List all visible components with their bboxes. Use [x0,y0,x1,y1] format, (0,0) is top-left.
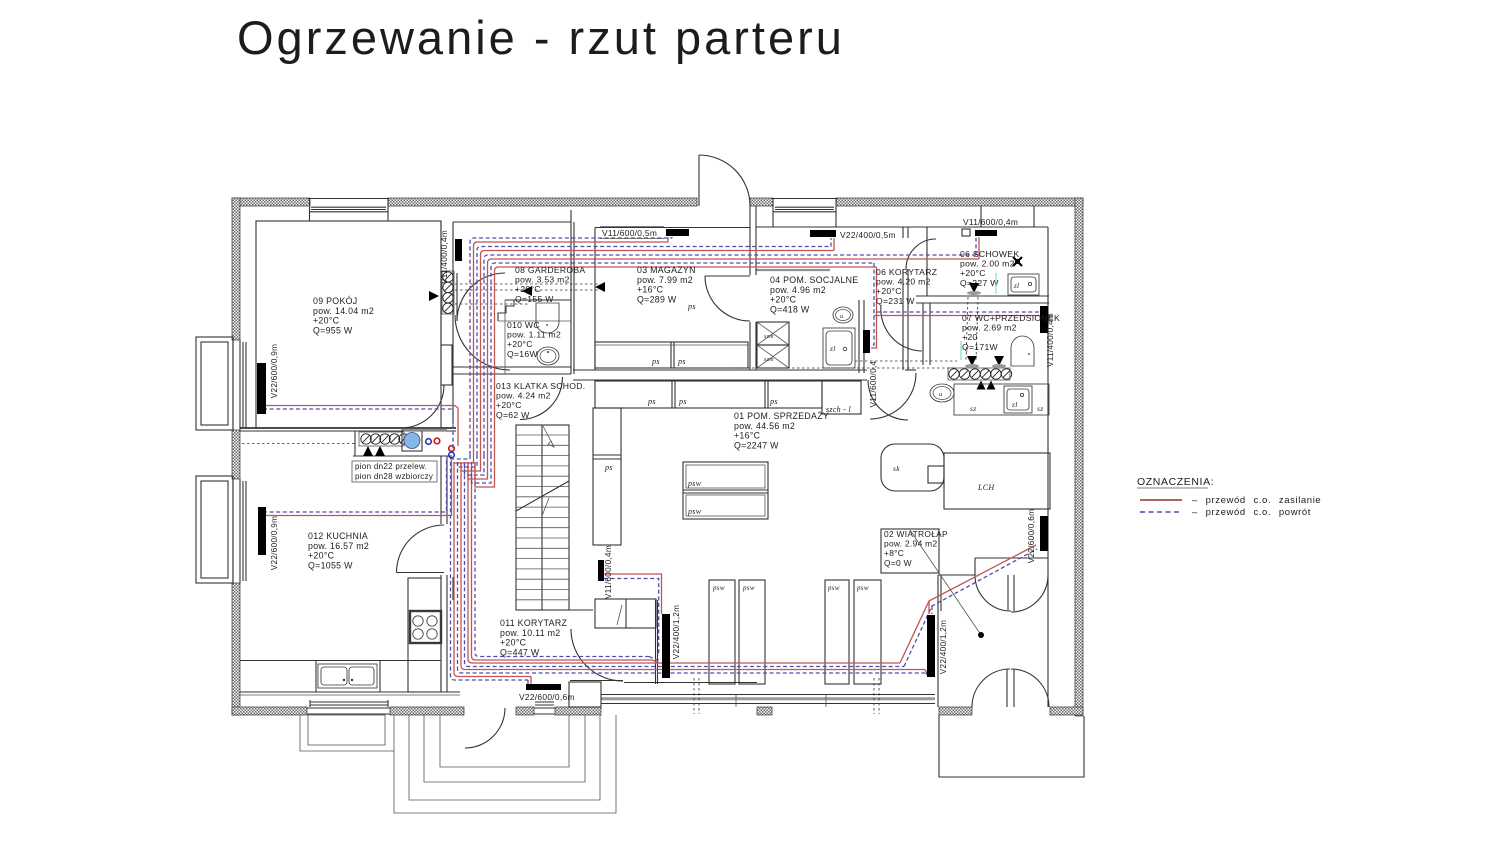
svg-text:03 MAGAZYN: 03 MAGAZYN [637,265,696,275]
svg-text:sz: sz [970,404,976,413]
svg-text:sk: sk [893,464,900,473]
svg-text:Q=418 W: Q=418 W [770,304,810,314]
svg-text:Q=1055 W: Q=1055 W [308,560,353,570]
svg-text:u: u [840,313,844,320]
svg-text:pow. 4.96 m2: pow. 4.96 m2 [770,285,826,295]
svg-text:– przewód c.o. zasilanie: – przewód c.o. zasilanie [1192,495,1321,506]
svg-text:+20°C: +20°C [876,286,902,296]
svg-text:Q=955 W: Q=955 W [313,325,353,335]
svg-text:V11/600/0,4: V11/600/0,4 [869,360,878,407]
svg-text:ps: ps [677,357,686,366]
svg-text:ps: ps [769,397,778,406]
svg-text:V22/600/0,9m: V22/600/0,9m [270,516,279,571]
svg-text:pow. 1.11 m2: pow. 1.11 m2 [507,330,561,340]
svg-text:02 WIATROŁAP: 02 WIATROŁAP [884,529,948,539]
svg-text:011 KORYTARZ: 011 KORYTARZ [500,618,567,628]
svg-text:+16°C: +16°C [637,285,664,295]
svg-text:Q=171W: Q=171W [962,342,999,352]
svg-text:V22/600/0,9m: V22/600/0,9m [270,344,279,399]
svg-text:pow. 44.56 m2: pow. 44.56 m2 [734,421,795,431]
svg-text:012 KUCHNIA: 012 KUCHNIA [308,531,368,541]
svg-text:08 GARDEROBA: 08 GARDEROBA [515,265,585,275]
svg-text:+20°C: +20°C [770,295,797,305]
svg-text:pion dn22 przelew.: pion dn22 przelew. [355,462,427,471]
svg-text:pow. 2.00 m2: pow. 2.00 m2 [960,259,1015,269]
svg-text:OZNACZENIA:: OZNACZENIA: [1137,476,1214,488]
svg-text:pion dn28 wzbiorczy: pion dn28 wzbiorczy [355,472,433,481]
svg-text:pow. 4.24 m2: pow. 4.24 m2 [496,391,551,401]
svg-text:+20°C: +20°C [960,268,986,278]
svg-text:pow. 7.99 m2: pow. 7.99 m2 [637,275,693,285]
svg-text:06 SCHOWEK: 06 SCHOWEK [960,249,1019,259]
svg-text:pow. 10.11 m2: pow. 10.11 m2 [500,628,560,638]
svg-text:– przewód c.o. powrót: – przewód c.o. powrót [1192,507,1311,518]
svg-text:sz: sz [1037,404,1043,413]
svg-text:szm: szm [764,357,774,363]
svg-text:Q=16W: Q=16W [507,349,538,359]
svg-text:ps: ps [647,397,656,406]
svg-text:pow. 4.20 m2: pow. 4.20 m2 [876,277,931,287]
svg-text:V22/600/0,6m: V22/600/0,6m [1027,509,1036,564]
svg-text:06 KORYTARZ: 06 KORYTARZ [876,267,937,277]
svg-text:+20: +20 [962,332,977,342]
svg-text:u: u [939,391,943,398]
svg-text:LCH: LCH [977,483,995,492]
svg-text:psw: psw [712,584,725,592]
svg-text:zl: zl [1011,400,1018,409]
svg-text:V11/600/0,4m: V11/600/0,4m [604,545,613,599]
svg-text:ps: ps [604,463,613,472]
svg-text:+20°C: +20°C [515,284,541,294]
svg-text:+8°C: +8°C [884,548,904,558]
svg-text:psw: psw [687,507,702,516]
svg-text:pow. 2.69 m2: pow. 2.69 m2 [962,323,1017,333]
svg-text:V22/400/1,2m: V22/400/1,2m [939,620,948,675]
svg-text:Q=447 W: Q=447 W [500,647,540,657]
svg-text:V11/600/0,5m: V11/600/0,5m [602,228,657,238]
svg-text:ps: ps [687,302,696,311]
svg-text:V11/600/0,4m: V11/600/0,4m [963,217,1018,227]
svg-text:Q=227 W: Q=227 W [960,278,999,288]
svg-text:Q=155 W: Q=155 W [515,294,554,304]
svg-text:szch - l: szch - l [826,405,852,414]
svg-text:Q=2247 W: Q=2247 W [734,440,779,450]
svg-text:zl: zl [1013,282,1019,290]
svg-text:04 POM. SOCJALNE: 04 POM. SOCJALNE [770,275,858,285]
svg-text:zl: zl [829,344,836,353]
svg-text:pow. 16.57 m2: pow. 16.57 m2 [308,541,369,551]
svg-text:pow. 2.94 m2: pow. 2.94 m2 [884,539,937,549]
svg-text:szm: szm [764,334,774,340]
svg-text:+20°C: +20°C [507,339,533,349]
svg-text:V11/400/0,4m: V11/400/0,4m [440,230,449,284]
svg-text:+20°C: +20°C [496,400,522,410]
svg-text:psw: psw [687,479,702,488]
svg-text:07 WC+PRZEDSIONEK: 07 WC+PRZEDSIONEK [962,313,1060,323]
svg-text:010 WC: 010 WC [507,320,540,330]
svg-text:pow. 3.53 m2: pow. 3.53 m2 [515,275,570,285]
svg-text:psw: psw [827,584,840,592]
svg-text:09 POKÓJ: 09 POKÓJ [313,296,357,306]
svg-text:013 KLATKA SCHOD.: 013 KLATKA SCHOD. [496,381,585,391]
svg-text:Q=231 W: Q=231 W [876,296,915,306]
svg-text:+20°C: +20°C [500,638,527,648]
svg-text:psw: psw [742,584,755,592]
svg-text:ps: ps [651,357,660,366]
svg-text:pow. 14.04 m2: pow. 14.04 m2 [313,306,374,316]
svg-text:Q=62 W: Q=62 W [496,410,530,420]
svg-text:Ogrzewanie - rzut parteru: Ogrzewanie - rzut parteru [237,11,845,64]
svg-text:+16°C: +16°C [734,431,761,441]
svg-text:V22/400/1,2m: V22/400/1,2m [672,605,681,660]
svg-text:01 POM. SPRZEDAŻY: 01 POM. SPRZEDAŻY [734,411,829,421]
svg-text:Q=289 W: Q=289 W [637,294,677,304]
svg-text:ps: ps [678,397,687,406]
svg-text:Q=0 W: Q=0 W [884,558,912,568]
svg-text:+20°C: +20°C [308,551,335,561]
svg-text:+20°C: +20°C [313,316,340,326]
svg-text:psw: psw [856,584,869,592]
svg-text:V22/600/0,6m: V22/600/0,6m [519,692,575,702]
svg-text:V22/400/0,5m: V22/400/0,5m [840,230,896,240]
